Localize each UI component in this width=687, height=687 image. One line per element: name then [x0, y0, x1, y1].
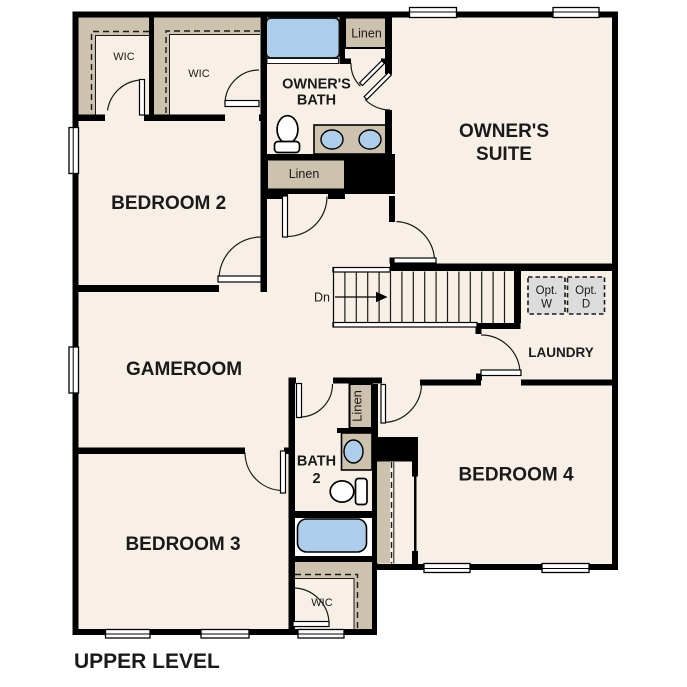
svg-text:Opt.: Opt. — [536, 285, 558, 297]
svg-text:BEDROOM 3: BEDROOM 3 — [125, 534, 240, 555]
svg-text:LAUNDRY: LAUNDRY — [528, 345, 594, 360]
svg-text:W: W — [541, 299, 552, 311]
svg-text:Opt.: Opt. — [575, 285, 597, 297]
svg-text:WIC: WIC — [113, 51, 134, 63]
svg-text:OWNER'S: OWNER'S — [459, 121, 549, 142]
svg-text:Linen: Linen — [289, 167, 320, 181]
svg-text:Dn: Dn — [314, 291, 330, 305]
svg-text:BATH: BATH — [297, 454, 336, 470]
svg-text:Linen: Linen — [351, 27, 382, 41]
svg-text:BEDROOM 4: BEDROOM 4 — [458, 465, 574, 486]
svg-text:Linen: Linen — [350, 390, 365, 422]
svg-text:OWNER'S: OWNER'S — [282, 77, 351, 93]
svg-text:UPPER LEVEL: UPPER LEVEL — [74, 650, 220, 673]
svg-text:BEDROOM 2: BEDROOM 2 — [111, 193, 226, 214]
svg-text:D: D — [582, 299, 590, 311]
svg-text:GAMEROOM: GAMEROOM — [126, 359, 242, 380]
svg-text:SUITE: SUITE — [476, 144, 532, 165]
svg-text:BATH: BATH — [297, 93, 336, 109]
svg-text:2: 2 — [312, 471, 320, 487]
svg-text:WIC: WIC — [188, 68, 209, 80]
